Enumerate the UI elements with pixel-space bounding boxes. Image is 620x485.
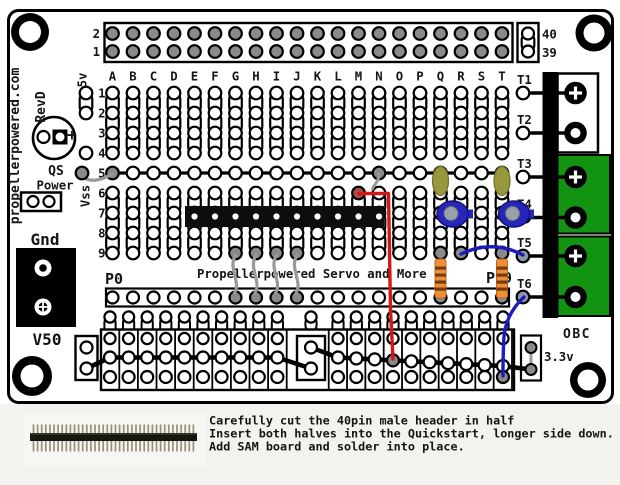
grid-hole <box>393 227 406 240</box>
grid-hole <box>270 227 283 240</box>
grid-hole <box>168 87 181 100</box>
row-number: 6 <box>98 186 105 200</box>
header-pin-hole <box>168 45 181 58</box>
grid-hole <box>434 147 447 160</box>
cell-hole <box>442 333 453 344</box>
grid-hole <box>332 187 345 200</box>
pair-hole <box>216 311 227 322</box>
mount-hole-bore <box>584 23 605 44</box>
cell-hole <box>216 371 228 383</box>
grid-hole <box>127 207 140 220</box>
grid-hole <box>188 107 201 120</box>
cell-hole <box>104 333 115 344</box>
cell-hole <box>424 333 435 344</box>
grid-hole <box>168 127 181 140</box>
grid-hole <box>229 167 242 180</box>
rev-label: RevD <box>34 91 49 122</box>
grid-hole <box>291 127 304 140</box>
grid-hole <box>291 87 304 100</box>
grid-hole <box>373 87 386 100</box>
p0-strip-hole <box>455 292 467 304</box>
header-pin-hole <box>373 45 386 58</box>
column-letter: F <box>211 70 218 84</box>
cell-hole <box>369 371 381 383</box>
grid-hole <box>352 167 365 180</box>
grid-hole <box>106 187 119 200</box>
grid-hole <box>147 227 160 240</box>
pair-hole <box>461 311 472 322</box>
grid-hole <box>332 107 345 120</box>
cell-hole <box>479 359 491 371</box>
power-label: Power <box>36 179 73 193</box>
resistor-stripe <box>497 281 508 284</box>
cap-center <box>444 207 458 221</box>
cell-hole <box>160 333 171 344</box>
cell-hole <box>272 333 283 344</box>
grid-hole <box>393 207 406 220</box>
header-pin-hole <box>496 45 509 58</box>
cell-hole <box>235 333 246 344</box>
cell-hole <box>178 371 190 383</box>
grid-hole <box>455 187 468 200</box>
grid-hole <box>434 227 447 240</box>
cell-hole <box>141 371 153 383</box>
cell-hole <box>123 333 134 344</box>
jack-square-hole <box>56 133 65 142</box>
grid-hole <box>127 187 140 200</box>
header-bar-pin <box>355 213 361 219</box>
p0-strip-hole <box>476 292 488 304</box>
column-letter: I <box>273 70 280 84</box>
p0-strip-hole <box>209 292 221 304</box>
pair-hole <box>179 311 190 322</box>
header-pin-hole <box>127 27 140 40</box>
cell-hole <box>104 371 116 383</box>
pin39-hole <box>522 46 534 58</box>
header-pin-hole <box>229 45 242 58</box>
p0-strip-hole <box>148 292 160 304</box>
vss-label: Vss <box>79 185 93 207</box>
grid-hole <box>209 247 222 260</box>
pin39-label: 39 <box>542 46 557 60</box>
grid-hole <box>270 147 283 160</box>
grid-hole <box>127 147 140 160</box>
resistor-stripe <box>497 267 508 270</box>
grid-hole <box>188 87 201 100</box>
grid-hole <box>127 107 140 120</box>
grid-hole <box>127 227 140 240</box>
grid-hole <box>270 127 283 140</box>
column-letter: G <box>232 70 239 84</box>
grid-hole <box>106 207 119 220</box>
5v-hole <box>80 147 93 160</box>
cell-hole <box>460 358 472 370</box>
p0-label: P0 <box>105 270 123 288</box>
grid-hole <box>168 147 181 160</box>
top-header-box <box>105 23 513 62</box>
box-hole <box>305 342 317 354</box>
cell-hole <box>405 355 417 367</box>
header-pin-hole <box>168 27 181 40</box>
grid-hole <box>168 247 181 260</box>
header-bar-pin <box>335 213 341 219</box>
header-pin-hole <box>455 27 468 40</box>
grid-hole <box>168 207 181 220</box>
pad-crosshair-icon <box>574 250 577 263</box>
box-hole <box>305 363 317 375</box>
v33-hole <box>526 342 537 353</box>
grid-hole <box>188 127 201 140</box>
grid-hole <box>455 107 468 120</box>
instruction-line: Carefully cut the 40pin male header in h… <box>209 414 514 428</box>
header-pin-hole <box>393 45 406 58</box>
header-bar-pin <box>191 213 197 219</box>
cell-hole <box>141 352 153 364</box>
grid-hole <box>291 167 304 180</box>
cap-center <box>506 207 520 221</box>
pair-hole <box>160 311 171 322</box>
grid-hole <box>393 107 406 120</box>
terminal-label: T3 <box>517 157 532 171</box>
grid-hole <box>352 107 365 120</box>
cell-hole <box>104 352 116 364</box>
header-bar-pin <box>294 213 300 219</box>
grid-hole <box>332 87 345 100</box>
cell-hole <box>216 333 227 344</box>
grid-hole <box>209 167 222 180</box>
grid-hole <box>270 87 283 100</box>
grid-hole <box>332 147 345 160</box>
grid-hole <box>127 167 140 180</box>
pair-hole <box>406 311 417 322</box>
pair-hole <box>332 311 343 322</box>
obc-label: OBC <box>563 327 591 342</box>
terminal-hole <box>517 171 530 184</box>
row-number: 3 <box>98 126 105 140</box>
grid-hole <box>414 147 427 160</box>
grid-hole <box>393 87 406 100</box>
grid-hole <box>209 227 222 240</box>
pair-hole <box>351 311 362 322</box>
header-bar-pin <box>232 213 238 219</box>
header-pin-hole <box>332 45 345 58</box>
grid-hole <box>250 167 263 180</box>
grid-hole <box>270 107 283 120</box>
pair-hole <box>197 311 208 322</box>
grid-hole <box>147 167 160 180</box>
cell-hole <box>442 357 454 369</box>
header-pin-hole <box>270 45 283 58</box>
column-letter: D <box>170 70 177 84</box>
grid-hole <box>332 227 345 240</box>
mount-hole-bore <box>578 370 599 391</box>
grid-hole <box>106 87 119 100</box>
grid-hole <box>188 187 201 200</box>
grid-hole <box>352 227 365 240</box>
p0-strip-hole <box>414 292 426 304</box>
qs-power-hole <box>28 196 39 207</box>
grid-hole <box>414 127 427 140</box>
header-pin-hole <box>311 27 324 40</box>
p0-strip-hole <box>107 292 119 304</box>
header-pin-hole <box>414 27 427 40</box>
header-bar-pin <box>314 213 320 219</box>
pair-hole <box>305 311 316 322</box>
resistor-stripe <box>497 274 508 277</box>
pair-hole <box>479 311 490 322</box>
column-letter: L <box>334 70 341 84</box>
bottom-power-strip <box>76 311 542 390</box>
header-pin-hole <box>106 27 119 40</box>
header-pin-hole <box>127 45 140 58</box>
cell-hole <box>142 333 153 344</box>
header-bar-pin <box>212 213 218 219</box>
grid-hole <box>393 127 406 140</box>
grid-hole <box>147 107 160 120</box>
grid-hole <box>434 247 447 260</box>
cell-hole <box>234 352 246 364</box>
grid-hole <box>168 227 181 240</box>
column-letter: N <box>375 70 382 84</box>
grid-hole <box>250 107 263 120</box>
cell-hole <box>197 352 209 364</box>
jack-pin-hole <box>38 131 50 143</box>
grid-hole <box>496 127 509 140</box>
pad-bore <box>571 292 581 302</box>
pad-bore <box>571 128 581 138</box>
row-number: 8 <box>98 226 105 240</box>
cell-hole <box>160 352 172 364</box>
qs-label: QS <box>48 164 64 179</box>
instruction-line: Insert both halves into the Quickstart, … <box>209 427 614 441</box>
grid-hole <box>229 127 242 140</box>
grid-hole <box>250 127 263 140</box>
p0-signal-strip <box>106 289 509 307</box>
grid-hole <box>414 247 427 260</box>
header-pin-hole <box>434 27 447 40</box>
grid-hole <box>373 147 386 160</box>
grid-hole <box>209 87 222 100</box>
terminal-label: T5 <box>517 236 532 250</box>
grid-hole <box>106 247 119 260</box>
pair-hole <box>235 311 246 322</box>
pad-bore <box>571 213 581 223</box>
instruction-line: Add SAM board and solder into place. <box>209 440 465 454</box>
grid-hole <box>414 187 427 200</box>
grid-hole <box>106 227 119 240</box>
pad-crosshair-icon <box>574 87 577 100</box>
cell-hole <box>387 371 399 383</box>
grid-hole <box>229 87 242 100</box>
grid-hole <box>311 147 324 160</box>
pair-hole <box>104 311 115 322</box>
pin40-hole <box>522 28 534 40</box>
header-pin-hole <box>414 45 427 58</box>
column-letter: R <box>457 70 465 84</box>
header-pin-hole <box>291 27 304 40</box>
grid-hole <box>168 107 181 120</box>
grid-hole <box>127 127 140 140</box>
cell-hole <box>369 353 381 365</box>
grid-hole <box>332 127 345 140</box>
pair-hole <box>442 311 453 322</box>
grid-hole <box>475 187 488 200</box>
p0-strip-hole <box>168 292 180 304</box>
header-pin-hole <box>311 45 324 58</box>
mount-hole-bore <box>21 365 44 388</box>
grid-hole <box>147 127 160 140</box>
grid-hole <box>270 167 283 180</box>
column-letter: K <box>314 70 322 84</box>
grid-hole <box>106 147 119 160</box>
header-bar-pin <box>253 213 259 219</box>
grid-hole <box>168 167 181 180</box>
grid-hole <box>455 127 468 140</box>
cell-hole <box>253 333 264 344</box>
cell-hole <box>351 333 362 344</box>
grid-hole <box>291 187 304 200</box>
cell-hole <box>405 371 417 383</box>
grid-hole <box>127 247 140 260</box>
grid-hole <box>311 107 324 120</box>
grid-hole <box>311 227 324 240</box>
grid-hole <box>352 147 365 160</box>
p0-strip-box <box>106 289 509 307</box>
pin40-label: 40 <box>542 28 557 42</box>
grid-hole <box>147 87 160 100</box>
grid-hole <box>250 147 263 160</box>
header-pin-hole <box>250 45 263 58</box>
grid-hole <box>475 147 488 160</box>
column-letter: Q <box>437 70 444 84</box>
header-pin-hole <box>250 27 263 40</box>
column-letter: S <box>478 70 485 84</box>
gnd-block <box>16 248 76 327</box>
grid-hole <box>496 87 509 100</box>
row-number: 2 <box>98 106 105 120</box>
column-letter: B <box>129 70 136 84</box>
resistor <box>497 259 508 298</box>
cell-hole <box>253 352 265 364</box>
column-letter: O <box>396 70 403 84</box>
header-pin-hole <box>270 27 283 40</box>
cell-hole <box>216 352 228 364</box>
terminal-label: T1 <box>517 73 532 87</box>
cell-hole <box>332 333 343 344</box>
grid-hole <box>414 87 427 100</box>
gnd-hole-bore <box>39 264 47 272</box>
grid-hole <box>311 247 324 260</box>
header-pin-hole <box>475 45 488 58</box>
grid-hole <box>414 107 427 120</box>
grid-hole <box>229 187 242 200</box>
grid-hole <box>475 167 488 180</box>
header-pin-hole <box>209 27 222 40</box>
column-letter: A <box>109 70 117 84</box>
grid-hole <box>168 187 181 200</box>
header-pin-hole <box>188 45 201 58</box>
pair-hole <box>123 311 134 322</box>
qs-power-hole <box>44 196 55 207</box>
cell-hole <box>197 371 209 383</box>
v50-label: V50 <box>33 330 62 349</box>
header-pin-hole <box>475 27 488 40</box>
header-row-label: 1 <box>93 45 100 59</box>
grid-hole <box>311 87 324 100</box>
grid-hole <box>209 107 222 120</box>
grid-hole <box>229 107 242 120</box>
pair-hole <box>369 311 380 322</box>
cell-hole <box>234 371 246 383</box>
cell-hole <box>350 352 362 364</box>
grid-hole <box>414 227 427 240</box>
grid-hole <box>434 127 447 140</box>
column-letter: C <box>150 70 157 84</box>
resistor-stripe <box>435 274 446 277</box>
p0-strip-hole <box>373 292 385 304</box>
grid-hole <box>291 107 304 120</box>
cell-hole <box>461 333 472 344</box>
cell-hole <box>424 356 436 368</box>
grid-hole <box>373 127 386 140</box>
cell-hole <box>460 371 472 383</box>
cell-hole <box>178 352 190 364</box>
resistor-stripe <box>435 288 446 291</box>
grid-hole <box>332 167 345 180</box>
column-letter: H <box>252 70 259 84</box>
grid-hole <box>496 227 509 240</box>
grid-hole <box>106 127 119 140</box>
row-number: 4 <box>98 146 105 160</box>
header-row-label: 2 <box>93 27 100 41</box>
p0-strip-hole <box>189 292 201 304</box>
grid-hole <box>311 167 324 180</box>
grid-hole <box>229 227 242 240</box>
site-label: propellerpowered.com <box>8 68 23 225</box>
grid-hole <box>393 187 406 200</box>
grid-hole <box>291 227 304 240</box>
grid-hole <box>475 87 488 100</box>
grid-hole <box>352 247 365 260</box>
grid-hole <box>250 187 263 200</box>
cell-hole <box>197 333 208 344</box>
grid-hole <box>291 147 304 160</box>
resistor <box>435 259 446 298</box>
header-pin-hole <box>209 45 222 58</box>
header-pin-hole <box>352 45 365 58</box>
grid-hole <box>352 127 365 140</box>
gnd-label: Gnd <box>31 230 60 249</box>
olive-capacitor <box>494 167 510 196</box>
header-pin-hole <box>291 45 304 58</box>
grid-hole <box>434 107 447 120</box>
grid-hole <box>270 187 283 200</box>
grid-hole <box>188 167 201 180</box>
grid-hole <box>373 247 386 260</box>
grid-hole <box>188 147 201 160</box>
plus-label: + <box>67 125 77 144</box>
pin-header-photo <box>24 413 206 467</box>
5v-hole <box>80 87 93 100</box>
cell-hole <box>350 371 362 383</box>
grid-hole <box>455 147 468 160</box>
grid-hole <box>106 107 119 120</box>
grid-hole <box>188 247 201 260</box>
pair-hole <box>142 311 153 322</box>
row-number: 9 <box>98 246 105 260</box>
cell-hole <box>332 371 344 383</box>
grid-hole <box>455 227 468 240</box>
